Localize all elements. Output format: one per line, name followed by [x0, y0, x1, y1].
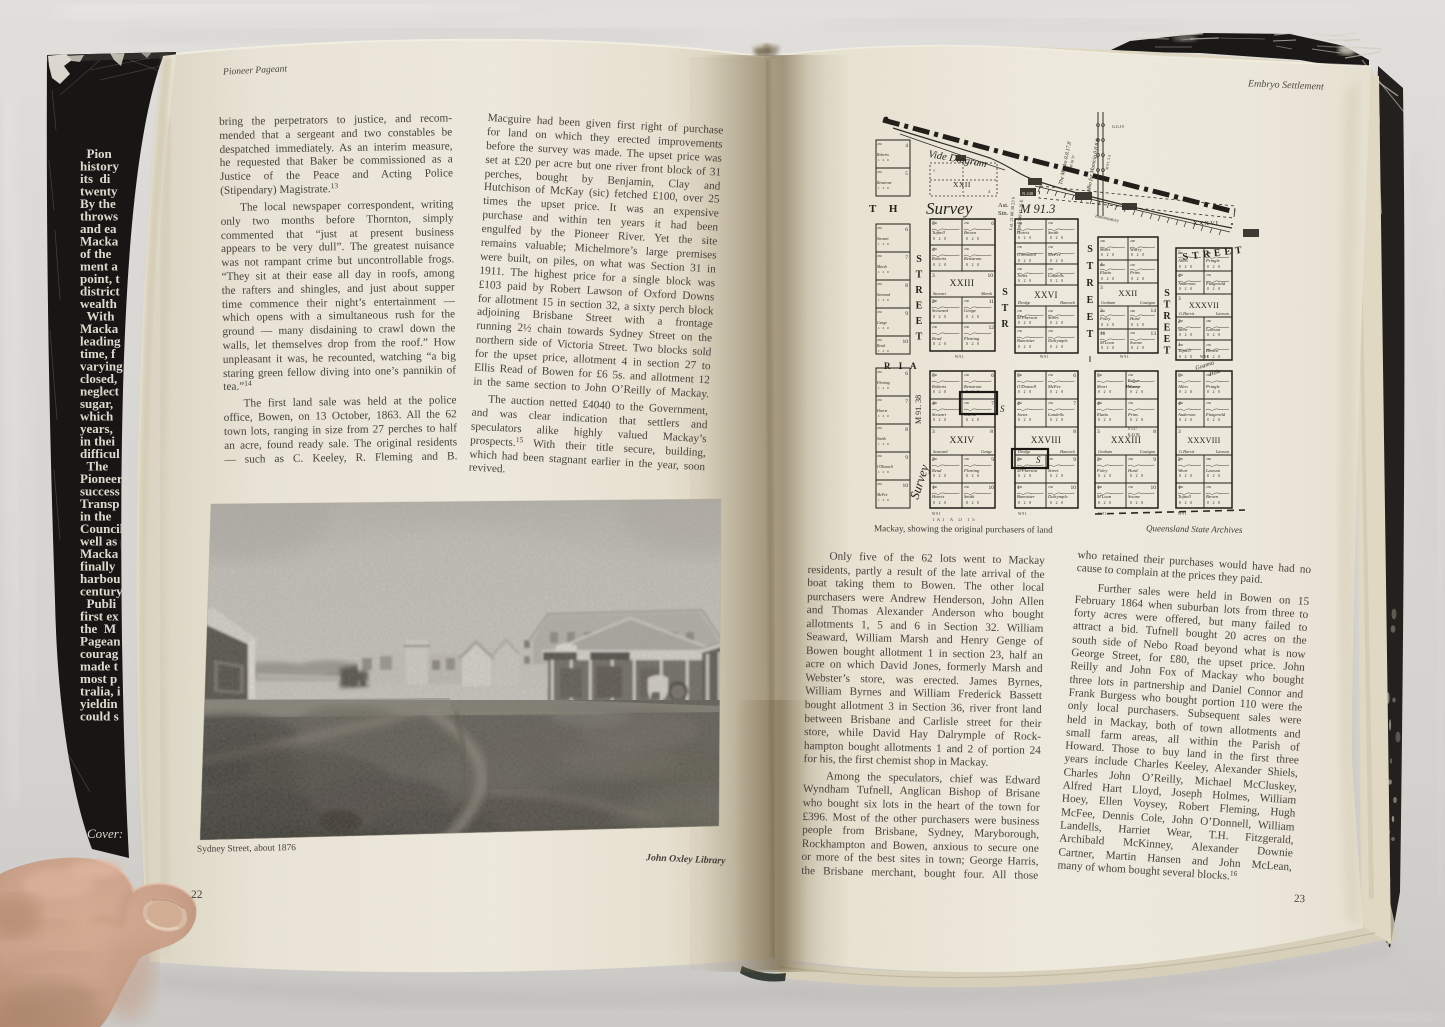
svg-text:could s: could s [80, 709, 119, 724]
svg-text:Cover:: Cover: [87, 826, 123, 841]
